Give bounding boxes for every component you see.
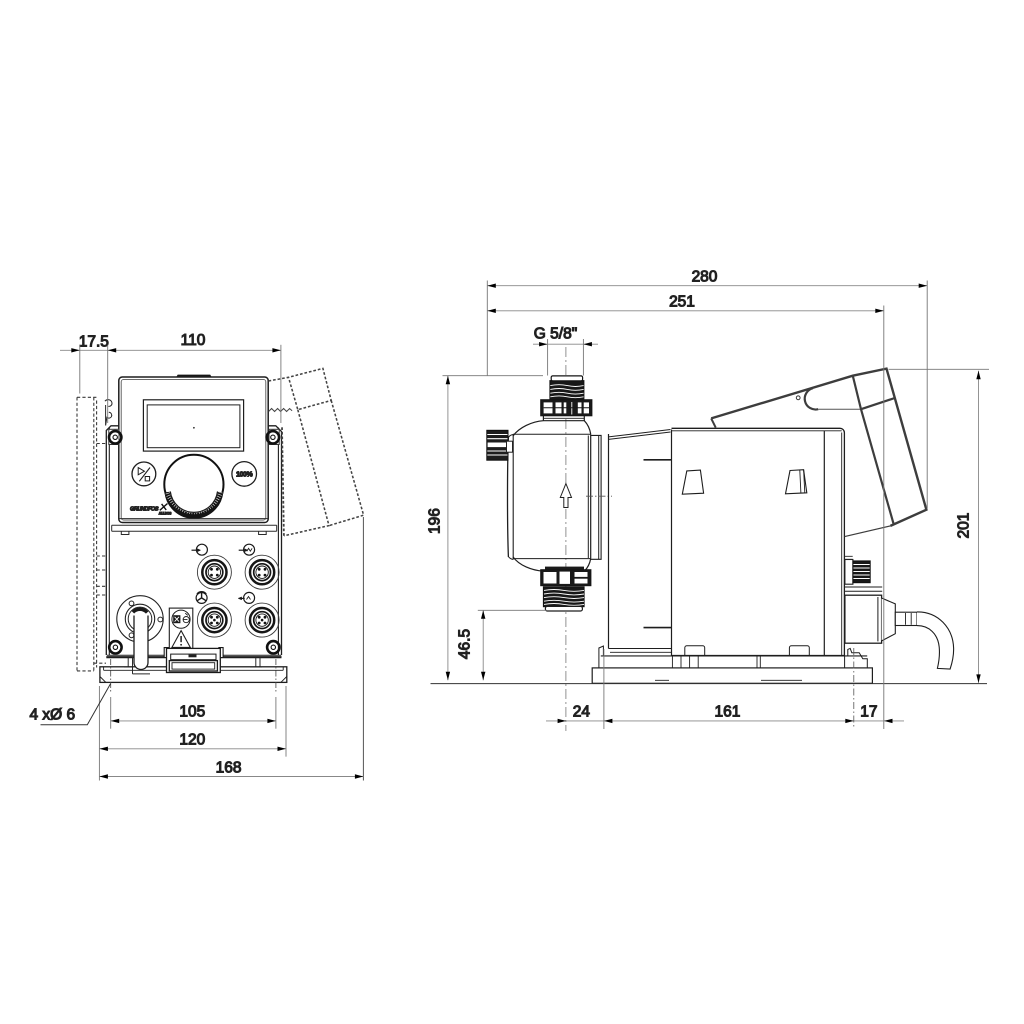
- svg-text:105: 105: [179, 704, 205, 721]
- svg-text:168: 168: [216, 759, 242, 776]
- svg-text:280: 280: [692, 268, 718, 285]
- svg-text:4 xØ 6: 4 xØ 6: [30, 707, 76, 724]
- svg-text:201: 201: [956, 513, 973, 539]
- svg-text:100%: 100%: [236, 471, 252, 478]
- svg-text:G 5/8": G 5/8": [534, 326, 577, 343]
- svg-text:ALLDOS: ALLDOS: [159, 511, 172, 515]
- svg-text:251: 251: [669, 293, 695, 310]
- svg-text:17.5: 17.5: [79, 333, 109, 350]
- svg-text:196: 196: [427, 508, 444, 534]
- svg-text:161: 161: [714, 703, 740, 720]
- svg-text:110: 110: [181, 332, 206, 349]
- svg-text:24: 24: [573, 703, 591, 720]
- svg-text:46.5: 46.5: [457, 629, 474, 659]
- svg-text:GRUNDFOS: GRUNDFOS: [130, 507, 159, 513]
- svg-text:120: 120: [179, 732, 205, 749]
- svg-text:17: 17: [860, 703, 877, 720]
